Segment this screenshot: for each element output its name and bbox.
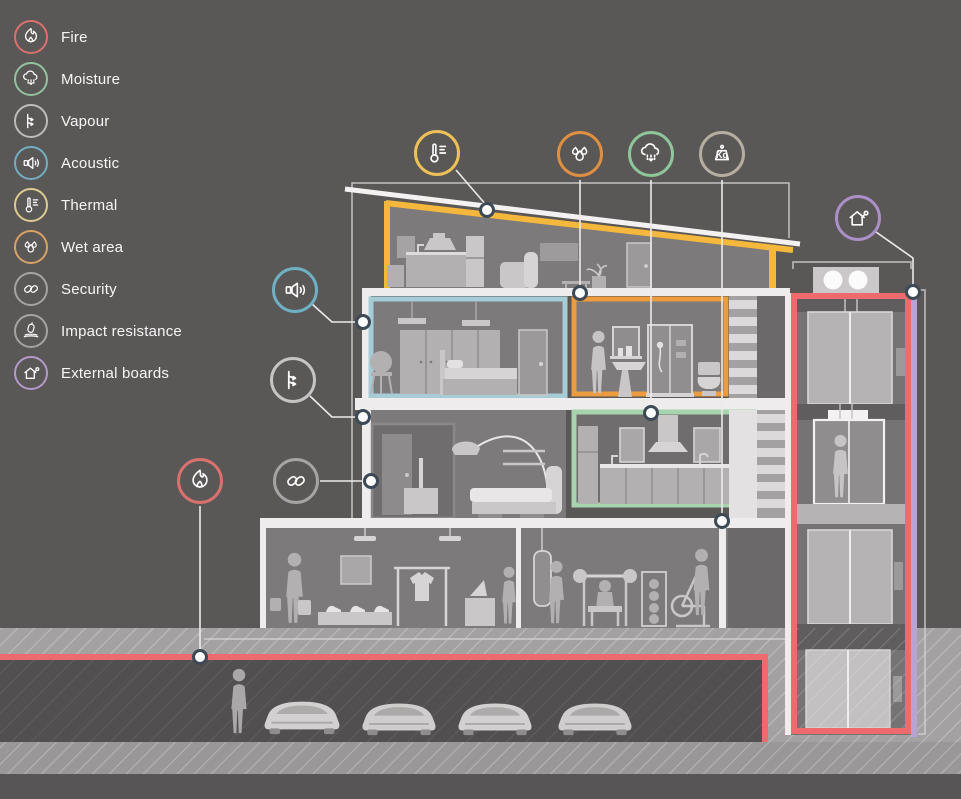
elevator-doors-level3 [808, 312, 905, 404]
moisture-icon [14, 62, 48, 96]
fire-callout [177, 458, 223, 504]
acoustic-icon [14, 146, 48, 180]
vapour-leader [310, 396, 356, 417]
weight-dot [716, 515, 729, 528]
vapour-icon [14, 104, 48, 138]
elevator-car [814, 420, 884, 504]
security-icon [282, 467, 310, 495]
stairs-upper [729, 296, 790, 400]
legend-item-thermal: Thermal [14, 188, 117, 222]
weight-kg-icon [708, 140, 736, 168]
legend-label: Security [61, 281, 117, 298]
fire-icon [14, 20, 48, 54]
diagram-canvas: Fire Moisture Vapour Acoustic Thermal We… [0, 0, 961, 799]
legend-label: Fire [61, 29, 88, 46]
legend-label: External boards [61, 365, 169, 382]
legend-item-security: Security [14, 272, 117, 306]
acoustic-dot [357, 316, 370, 329]
elevator-shaft [785, 267, 917, 737]
thermal-callout [414, 130, 460, 176]
first-floor [371, 410, 790, 518]
legend-label: Acoustic [61, 155, 119, 172]
attic-floor [345, 189, 800, 292]
moisture-icon [637, 140, 665, 168]
security-icon [14, 272, 48, 306]
legend-label: Moisture [61, 71, 120, 88]
legend-item-vapour: Vapour [14, 104, 109, 138]
building-illustration [0, 0, 961, 799]
legend-item-acoustic: Acoustic [14, 146, 119, 180]
floor-slab [355, 398, 790, 410]
external-boards-leader [876, 232, 913, 286]
wet-area-icon [566, 140, 594, 168]
legend-item-impact-resistance: Impact resistance [14, 314, 182, 348]
legend-item-external-boards: External boards [14, 356, 169, 390]
legend-label: Wet area [61, 239, 123, 256]
security-dot [365, 475, 378, 488]
weight-callout: Kg [699, 131, 745, 177]
moisture-callout [628, 131, 674, 177]
external-boards-dot [907, 286, 920, 299]
moisture-dot [645, 407, 658, 420]
legend-item-wet-area: Wet area [14, 230, 123, 264]
second-floor [370, 296, 790, 400]
wet-area-callout [557, 131, 603, 177]
vapour-dot [357, 411, 370, 424]
wet-area-icon [14, 230, 48, 264]
legend-item-fire: Fire [14, 20, 88, 54]
acoustic-leader [312, 304, 356, 322]
fire-icon [186, 467, 214, 495]
wet-area-dot [574, 287, 587, 300]
external-boards-icon [844, 204, 872, 232]
fire-dot [194, 651, 207, 664]
thermal-icon [423, 139, 451, 167]
floor-slab [260, 518, 790, 528]
stairs-lower [729, 410, 790, 518]
legend-label: Thermal [61, 197, 117, 214]
external-boards-line [911, 292, 917, 737]
impact-resistance-icon [14, 314, 48, 348]
vapour-callout [270, 357, 316, 403]
legend-item-moisture: Moisture [14, 62, 120, 96]
thermal-icon [14, 188, 48, 222]
legend-label: Impact resistance [61, 323, 182, 340]
thermal-dot [481, 204, 494, 217]
elevator-machine-room [813, 267, 879, 293]
acoustic-callout [272, 267, 318, 313]
bottom-band [0, 774, 961, 799]
vapour-icon [279, 366, 307, 394]
security-callout [273, 458, 319, 504]
external-boards-callout [835, 195, 881, 241]
external-boards-icon [14, 356, 48, 390]
legend-label: Vapour [61, 113, 109, 130]
parking-garage [0, 660, 762, 742]
elevator-doors-ground [808, 530, 903, 624]
acoustic-icon [281, 276, 309, 304]
ground-floor [260, 522, 788, 628]
